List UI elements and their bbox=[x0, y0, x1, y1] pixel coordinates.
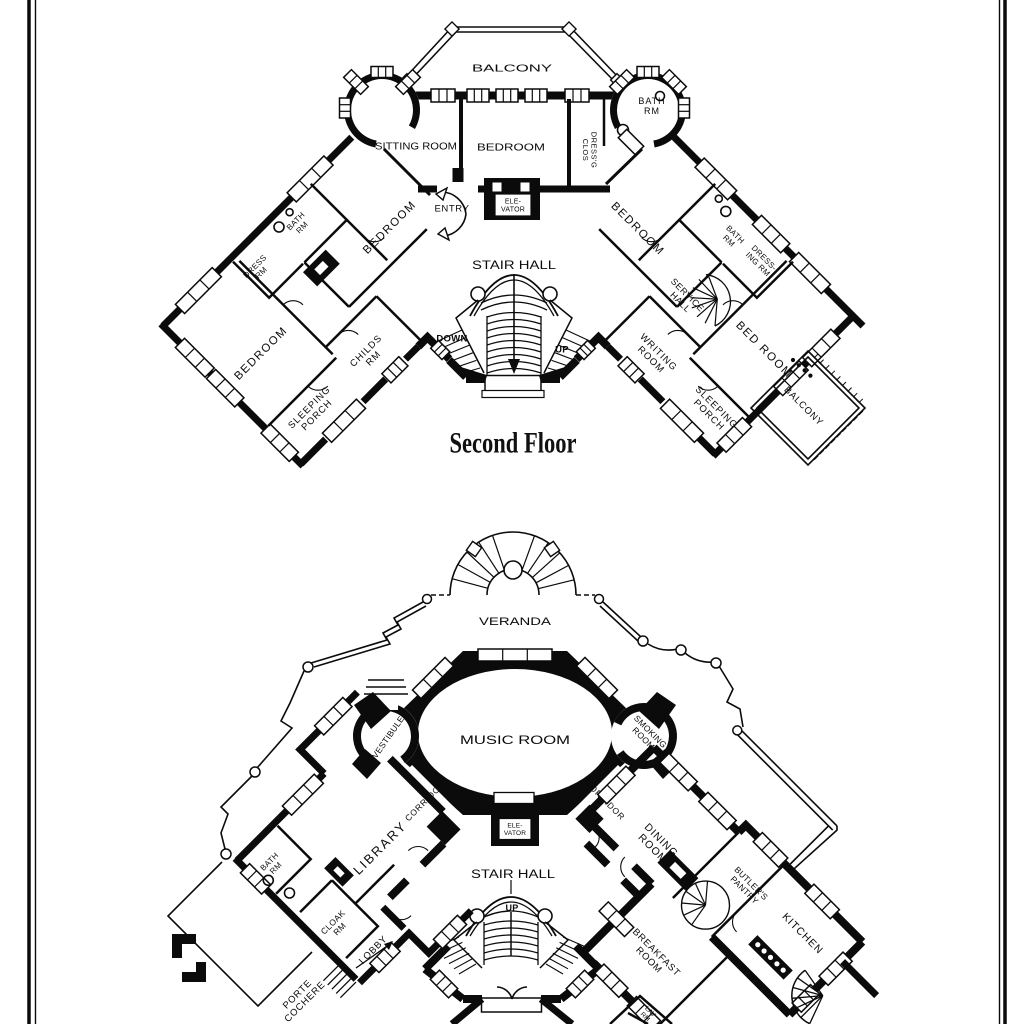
svg-text:BALCONY: BALCONY bbox=[472, 63, 552, 75]
svg-text:BEDROOM: BEDROOM bbox=[477, 142, 545, 154]
svg-text:VATOR: VATOR bbox=[501, 206, 525, 213]
svg-text:BATH: BATH bbox=[638, 96, 665, 106]
svg-text:Second Floor: Second Floor bbox=[450, 427, 577, 460]
svg-text:STAIR HALL: STAIR HALL bbox=[471, 869, 556, 881]
svg-text:STAIR HALL: STAIR HALL bbox=[472, 258, 556, 272]
svg-text:ENTRY: ENTRY bbox=[434, 203, 469, 214]
svg-text:VERANDA: VERANDA bbox=[479, 616, 552, 628]
svg-text:UP: UP bbox=[505, 903, 518, 913]
svg-text:MUSIC ROOM: MUSIC ROOM bbox=[460, 735, 570, 747]
svg-text:ELE-: ELE- bbox=[505, 199, 522, 206]
svg-text:UP: UP bbox=[555, 344, 569, 355]
svg-text:VATOR: VATOR bbox=[504, 830, 526, 837]
svg-text:ELE-: ELE- bbox=[507, 823, 522, 830]
svg-text:RM: RM bbox=[644, 106, 660, 116]
svg-text:CLOS: CLOS bbox=[581, 139, 590, 161]
